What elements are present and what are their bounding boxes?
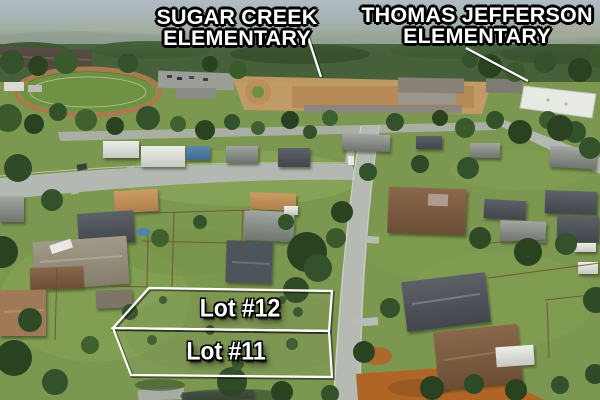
aerial-scene	[0, 0, 600, 400]
lot-12-label: Lot #12	[200, 295, 281, 324]
aerial-listing-photo: SUGAR CREEK ELEMENTARY THOMAS JEFFERSON …	[0, 0, 600, 400]
sugar-creek-callout-line1: SUGAR CREEK	[156, 7, 317, 28]
lot-11-label: Lot #11	[186, 338, 265, 367]
thomas-jefferson-callout-line1: THOMAS JEFFERSON	[361, 5, 592, 26]
sugar-creek-callout-line2: ELEMENTARY	[156, 28, 317, 49]
thomas-jefferson-callout-line2: ELEMENTARY	[361, 26, 592, 47]
sugar-creek-callout: SUGAR CREEK ELEMENTARY	[156, 7, 317, 48]
thomas-jefferson-callout: THOMAS JEFFERSON ELEMENTARY	[361, 5, 592, 46]
